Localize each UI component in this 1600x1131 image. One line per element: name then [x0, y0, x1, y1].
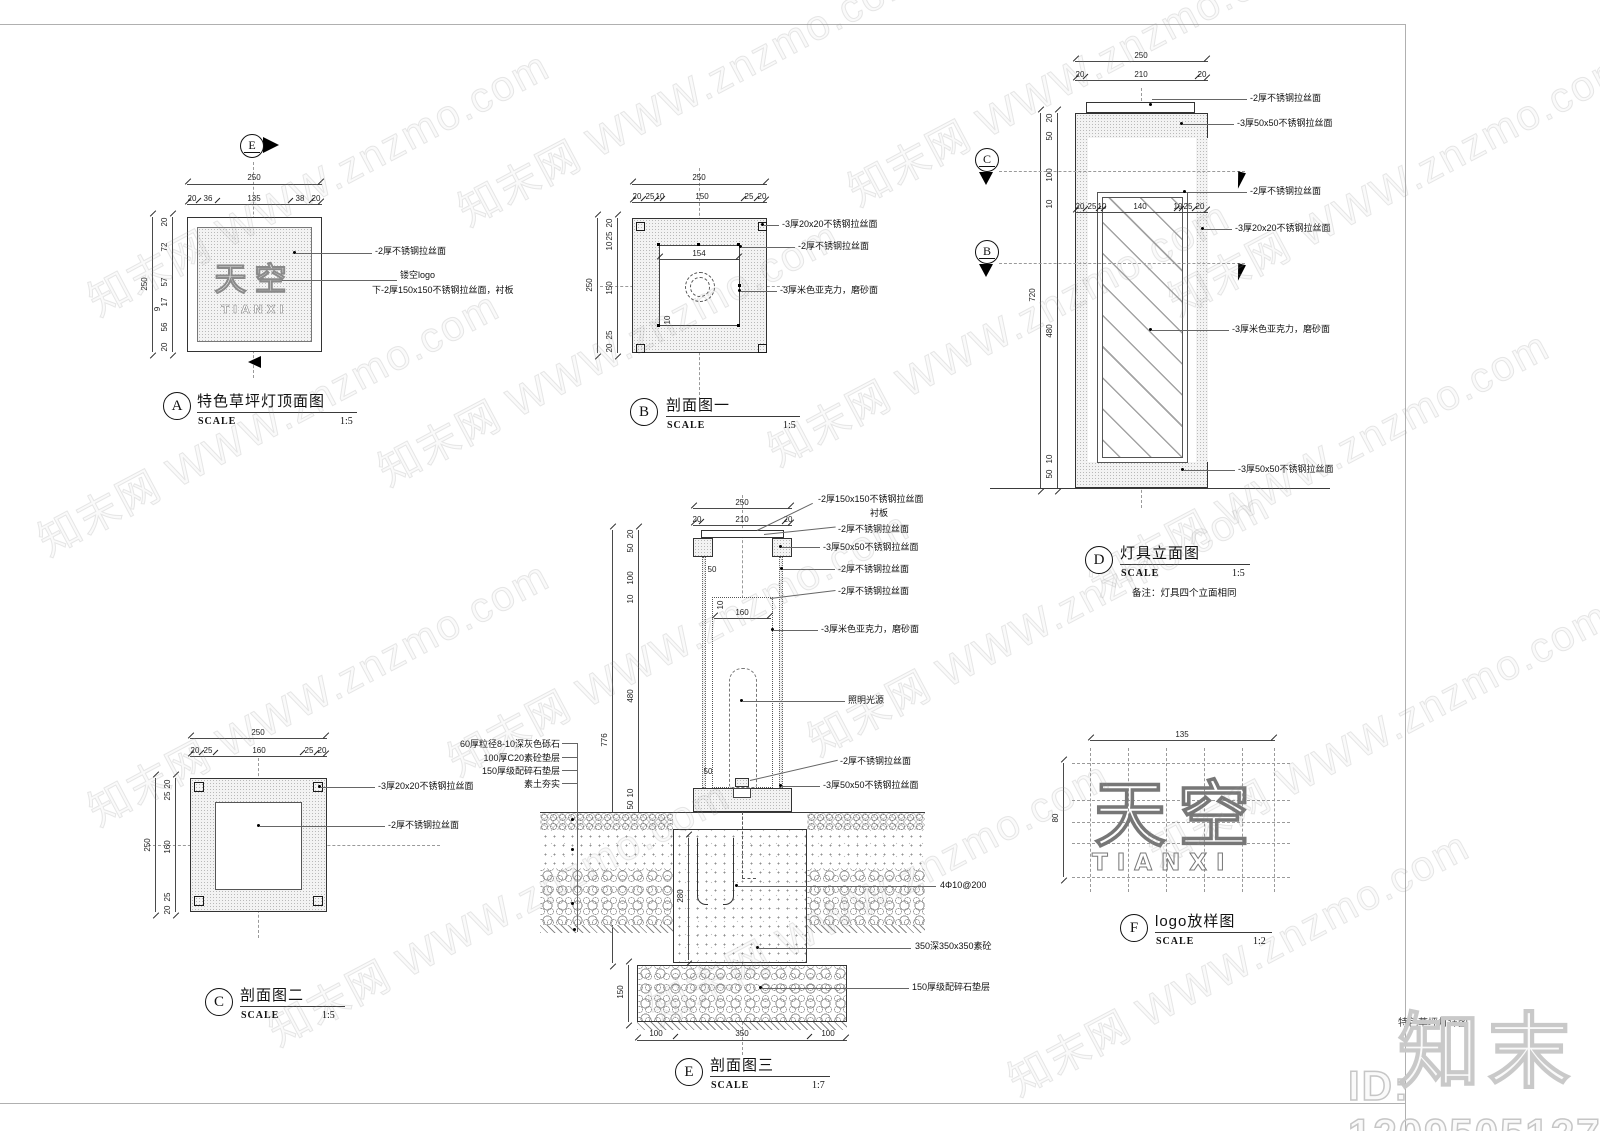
- dim-label: 17: [161, 298, 169, 307]
- section-marker-letter: C: [979, 153, 995, 167]
- lamp-cap-plate: [1086, 102, 1195, 113]
- drawing-sheet: 知末网 WWW.znzmo.com 知末网 WWW.znzmo.com 知末网 …: [0, 0, 1600, 1131]
- view-letter: B: [639, 404, 649, 421]
- dim-line: [632, 202, 767, 203]
- leader-line: [562, 770, 577, 771]
- dim-label: 100: [821, 1030, 834, 1038]
- dim-label: 25: [646, 193, 655, 201]
- annotation: 150厚级配碎石垫层: [912, 982, 990, 993]
- section-flag-icon: [979, 264, 993, 277]
- sheet-border-bottom: [0, 1103, 1405, 1104]
- view-letter: F: [1130, 920, 1138, 937]
- gravel-layer: [807, 813, 925, 830]
- annotation: -3厚米色亚克力，磨砂面: [780, 285, 878, 296]
- dim-label: 150: [695, 193, 708, 201]
- dim-line: [628, 965, 629, 1022]
- dim-label: 776: [601, 733, 609, 746]
- anchor-bolt: [697, 838, 708, 905]
- view-letter: D: [1094, 552, 1105, 569]
- annotation: -2厚不锈钢拉丝面: [375, 246, 446, 257]
- leader-line: [1184, 470, 1235, 471]
- dim-label: 20: [633, 193, 642, 201]
- dim-label: 20: [1076, 203, 1085, 211]
- view-d-title: 灯具立面图: [1120, 542, 1200, 563]
- dim-label: 250: [144, 838, 152, 851]
- dim-label: 10: [627, 789, 635, 798]
- scale-label: SCALE: [241, 1010, 279, 1021]
- dim-label: 140: [1133, 203, 1146, 211]
- scale-label: SCALE: [1156, 936, 1194, 947]
- scale-label: SCALE: [198, 416, 236, 427]
- base-notch: [733, 788, 751, 798]
- dim-line: [632, 184, 767, 185]
- leader-line: [321, 787, 375, 788]
- dim-label: 50: [1046, 470, 1054, 479]
- dim-label: 160: [164, 840, 172, 853]
- lamp-base-band: [1076, 462, 1207, 487]
- corner-post: [758, 344, 767, 353]
- leader-line: [562, 757, 577, 758]
- view-a-title: 特色草坪灯顶面图: [197, 390, 325, 411]
- leader-line: [1152, 99, 1247, 100]
- annotation: -3厚米色亚克力，磨砂面: [1232, 324, 1330, 335]
- bulb-holder: [735, 778, 749, 787]
- dim-label: 9: [154, 307, 162, 311]
- view-a-letter: A: [163, 392, 191, 420]
- view-b-letter: B: [630, 398, 658, 426]
- dim-label: 10: [627, 595, 635, 604]
- dim-label: 10: [606, 242, 614, 251]
- view-b-title: 剖面图一: [666, 394, 730, 415]
- grid-line: [1072, 877, 1290, 878]
- dim-line: [688, 838, 689, 960]
- pole-flange-left: [693, 538, 713, 557]
- dim-label: 154: [692, 250, 705, 258]
- annotation: -2厚不锈钢拉丝面: [1250, 93, 1321, 104]
- dim-label: 50: [708, 566, 717, 574]
- watermark-text: 知末网 WWW.znzmo.com: [1156, 33, 1600, 328]
- logo-cn: 天空: [214, 254, 294, 300]
- leader-dot: [573, 928, 576, 931]
- logo-en: TIANXI: [222, 303, 288, 316]
- dim-label: 20: [161, 343, 169, 352]
- view-c-title: 剖面图二: [240, 984, 304, 1005]
- dim-label: 280: [677, 889, 685, 902]
- view-e-letter: E: [675, 1058, 703, 1086]
- dim-label: 250: [586, 278, 594, 291]
- dim-label: 20: [1198, 71, 1207, 79]
- dim-label: 10: [1046, 455, 1054, 464]
- view-f-letter: F: [1120, 914, 1148, 942]
- dim-label: 25: [305, 747, 314, 755]
- corner-post: [636, 222, 645, 231]
- scale-value: 1:7: [812, 1080, 825, 1091]
- dim-label: 20: [188, 195, 197, 203]
- dim-label: 250: [735, 499, 748, 507]
- leader-line: [260, 826, 385, 827]
- dim-line: [693, 508, 792, 509]
- scale-label: SCALE: [667, 420, 705, 431]
- section-flag-icon: [263, 137, 279, 153]
- annotation: -3厚50x50不锈钢拉丝面: [823, 780, 919, 791]
- leader-line: [562, 743, 577, 744]
- anchor-centerline: [742, 812, 743, 878]
- section-marker-b: B: [975, 240, 999, 264]
- corner-post: [194, 896, 204, 906]
- corner-post: [313, 896, 323, 906]
- dim-label: 10: [656, 193, 665, 201]
- dim-label: 56: [161, 323, 169, 332]
- dim-label: 20: [627, 530, 635, 539]
- dim-label: 150: [606, 281, 614, 294]
- annotation: -2厚不锈钢拉丝面: [840, 756, 911, 767]
- dim-label: 25: [1088, 203, 1097, 211]
- drawing-id: ID: 1209505127: [1348, 1062, 1600, 1131]
- dim-label: 10: [1046, 200, 1054, 209]
- dim-label: 150: [617, 985, 625, 998]
- view-letter: C: [214, 994, 224, 1011]
- title-underline: [710, 1076, 830, 1077]
- anchor-hook: [742, 878, 756, 879]
- dim-line: [1090, 740, 1275, 741]
- scale-value: 1:5: [1232, 568, 1245, 579]
- section-marker-letter: E: [244, 139, 259, 153]
- dim-label: 350: [735, 1030, 748, 1038]
- view-e-title: 剖面图三: [710, 1054, 774, 1075]
- section-marker-e: E: [240, 134, 264, 158]
- scale-label: SCALE: [711, 1080, 749, 1091]
- leader-dot: [1149, 103, 1152, 106]
- annotation: -2厚不锈钢拉丝面: [388, 820, 459, 831]
- section-flag-icon: [248, 356, 261, 368]
- annotation: 350深350x350素砼: [915, 941, 992, 952]
- view-c-inner-panel: [215, 802, 302, 890]
- dim-label: 20: [758, 193, 767, 201]
- annotation: -3厚50x50不锈钢拉丝面: [1237, 118, 1333, 129]
- compacted-soil: [540, 925, 673, 933]
- scale-value: 1:2: [1253, 936, 1266, 947]
- leader-line: [782, 786, 820, 787]
- dim-label: 25: [164, 893, 172, 902]
- leader-line: [562, 783, 577, 784]
- dim-label: 20: [693, 516, 702, 524]
- dim-label: 210: [735, 516, 748, 524]
- view-letter: A: [172, 398, 183, 415]
- dim-label: 100: [627, 571, 635, 584]
- annotation: 镂空logo: [400, 270, 435, 281]
- scale-value: 1:5: [322, 1010, 335, 1021]
- dim-label: 10: [1098, 203, 1107, 211]
- section-marker-c: C: [975, 148, 999, 172]
- leader-line: [1183, 124, 1234, 125]
- leader-line: [774, 630, 818, 631]
- section-line: [999, 171, 1245, 172]
- view-a-logo-cutout: 天空 TIANXI: [197, 227, 312, 342]
- view-letter: E: [684, 1064, 693, 1081]
- dim-label: 250: [692, 174, 705, 182]
- lamp-top-band: [1076, 114, 1207, 138]
- section-marker-letter: B: [979, 245, 995, 259]
- dim-line: [693, 525, 792, 526]
- annotation: -2厚不锈钢拉丝面: [838, 586, 909, 597]
- watermark-text: 知末网 WWW.znzmo.com: [1136, 583, 1600, 878]
- dim-label: 50: [627, 544, 635, 553]
- scale-label: SCALE: [1121, 568, 1159, 579]
- dim-label: 25: [606, 232, 614, 241]
- anchor-bolt: [723, 838, 734, 905]
- view-d-letter: D: [1085, 546, 1113, 574]
- section-flag-icon: [979, 172, 993, 185]
- view-f-title: logo放样图: [1155, 910, 1235, 931]
- scale-value: 1:5: [340, 416, 353, 427]
- dim-label: 20: [164, 906, 172, 915]
- dim-label: 135: [1175, 731, 1188, 739]
- light-bulb: [729, 668, 757, 788]
- dim-label: 20: [606, 219, 614, 228]
- section-flag-icon: [1234, 171, 1246, 189]
- dim-label: 50: [1046, 132, 1054, 141]
- leader-line: [762, 988, 909, 989]
- leader-line: [1152, 330, 1229, 331]
- leader-dot: [571, 818, 574, 821]
- dim-label: 25: [745, 193, 754, 201]
- annotation: -3厚米色亚克力，磨砂面: [821, 624, 919, 635]
- view-c-letter: C: [205, 988, 233, 1016]
- dim-label: 20: [318, 747, 327, 755]
- scale-value: 1:5: [783, 420, 796, 431]
- view-d-note: 备注：灯具四个立面相同: [1132, 585, 1237, 599]
- dim-line: [637, 1040, 847, 1041]
